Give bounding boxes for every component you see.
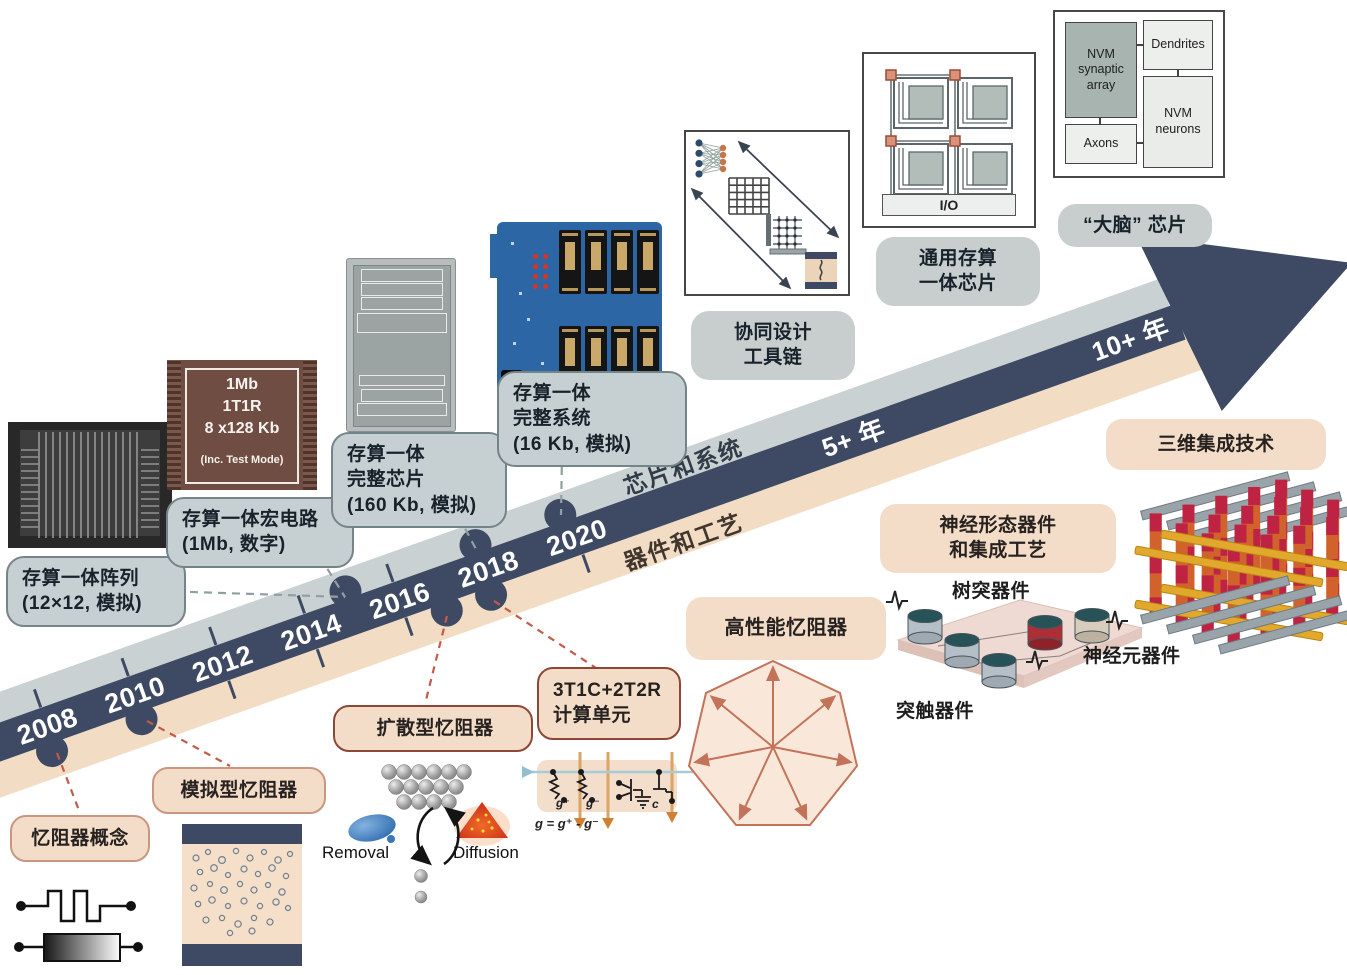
axons-block: Axons — [1065, 124, 1137, 164]
led-icon — [533, 264, 538, 269]
die-block — [357, 313, 447, 333]
callout-line: 通用存算 — [884, 246, 1032, 271]
callout-line: 和集成工艺 — [890, 538, 1106, 563]
block-connector — [1177, 70, 1179, 76]
neural-network-icon — [695, 139, 726, 177]
codesign-flow-art — [686, 132, 844, 290]
callout-line: 计算单元 — [553, 703, 669, 728]
memristor-module — [585, 230, 607, 294]
die-block — [359, 375, 445, 386]
chip-wiring-left — [21, 444, 39, 528]
memristor-symbol-icon — [14, 891, 143, 961]
io-block: I/O — [882, 194, 1016, 216]
callout-3t1c-2t2r-cell: 3T1C+2T2R 计算单元 — [537, 667, 681, 740]
crossbar-3d-graphic — [1135, 472, 1347, 654]
full-chip-die-photo — [346, 258, 456, 432]
codesign-flow-panel — [684, 130, 850, 296]
dendrite-device-cylinder — [1028, 616, 1062, 651]
weight-matrix-icon — [729, 178, 769, 214]
callout-cim-full-chip: 存算一体 完整芯片 (160 Kb, 模拟) — [331, 432, 507, 528]
callout-line: 一体芯片 — [884, 271, 1032, 296]
silkscreen-dot — [541, 362, 544, 365]
die-block — [361, 389, 443, 402]
callout-line: (12×12, 模拟) — [22, 591, 172, 616]
callout-line: 神经形态器件 — [890, 513, 1106, 538]
callout-line: 存算一体 — [347, 442, 493, 467]
callout-neuromorphic-devices: 神经形态器件 和集成工艺 — [880, 504, 1116, 573]
callout-brain-chip: “大脑” 芯片 — [1058, 204, 1212, 247]
led-icon — [543, 284, 548, 289]
diffusion-flame-icon — [454, 802, 510, 846]
callout-general-cim-chip: 通用存算 一体芯片 — [876, 237, 1040, 306]
silkscreen-dot — [519, 292, 522, 295]
led-icon — [543, 264, 548, 269]
callout-line: 扩散型忆阻器 — [349, 716, 521, 741]
memristor-module — [611, 230, 633, 294]
callout-line: 高性能忆阻器 — [696, 615, 876, 642]
diffusive-memristor-graphic — [346, 765, 510, 904]
conductance-formula: g = g⁺ - g⁻ — [535, 816, 599, 832]
die-label: 1T1R — [167, 398, 317, 416]
die-block — [357, 403, 447, 416]
callout-cim-array: 存算一体阵列 (12×12, 模拟) — [6, 556, 186, 627]
led-icon — [543, 254, 548, 259]
neuron-device-cylinder — [1075, 609, 1109, 644]
callout-codesign-toolchain: 协同设计 工具链 — [691, 311, 855, 380]
analog-memristor-crosssection — [182, 824, 302, 966]
dendrite-device-label: 树突器件 — [952, 576, 1030, 603]
callout-line: 完整系统 — [513, 406, 673, 431]
callout-line: (16 Kb, 模拟) — [513, 432, 673, 457]
pcb-tab — [490, 234, 499, 278]
callout-line: 存算一体宏电路 — [182, 507, 340, 532]
g-plus-label: g⁺ — [556, 796, 570, 810]
callout-line: (1Mb, 数字) — [182, 532, 340, 557]
callout-line: 工具链 — [699, 345, 847, 370]
led-icon — [533, 254, 538, 259]
input-arrow-icon — [522, 766, 534, 778]
nvm-synaptic-array-block: NVM synaptic array — [1065, 22, 1137, 118]
dendrites-block: Dendrites — [1143, 20, 1213, 70]
callout-line: 三维集成技术 — [1116, 432, 1316, 457]
memristor-module — [559, 230, 581, 294]
block-connector — [1137, 142, 1143, 144]
memristor-roadmap-figure: 2008 2010 2012 2014 2016 2018 2020 5+ 年 … — [0, 0, 1347, 975]
callout-line: 模拟型忆阻器 — [164, 778, 314, 803]
block-connector — [1137, 44, 1143, 46]
callout-line: 忆阻器概念 — [22, 826, 138, 851]
neuromorphic-platform-graphic — [886, 591, 1142, 688]
callout-diffusive-memristor: 扩散型忆阻器 — [333, 705, 533, 752]
callout-line: 存算一体 — [513, 381, 673, 406]
synapse-device-label: 突触器件 — [896, 696, 974, 723]
memristor-module — [637, 230, 659, 294]
callout-line: 协同设计 — [699, 320, 847, 345]
neuron-device-label: 神经元器件 — [1083, 641, 1181, 668]
callout-cim-macro: 存算一体宏电路 (1Mb, 数字) — [166, 497, 354, 568]
die-block — [361, 269, 443, 282]
performance-heptagon-chart — [689, 661, 857, 825]
callout-analog-memristor: 模拟型忆阻器 — [152, 767, 326, 814]
callout-3d-integration: 三维集成技术 — [1106, 419, 1326, 470]
callout-line: (160 Kb, 模拟) — [347, 493, 493, 518]
capacitor-label: c — [652, 797, 659, 811]
silkscreen-dot — [527, 318, 530, 321]
general-cim-chip-panel: I/O — [862, 52, 1036, 228]
led-icon — [533, 274, 538, 279]
callout-cim-full-system: 存算一体 完整系统 (16 Kb, 模拟) — [497, 371, 687, 467]
silkscreen-dot — [513, 342, 516, 345]
chip-wiring-right — [141, 444, 159, 528]
device-crosssection-icon — [805, 252, 837, 289]
die-block — [361, 297, 443, 310]
die-label: 8 x128 Kb — [167, 420, 317, 438]
callout-line: 3T1C+2T2R — [553, 678, 669, 703]
g-minus-label: g⁻ — [586, 796, 600, 810]
die-label: (Inc. Test Mode) — [167, 454, 317, 466]
callout-line: 存算一体阵列 — [22, 566, 172, 591]
die-block — [361, 283, 443, 296]
macro-chip-photo: 1Mb 1T1R 8 x128 Kb (Inc. Test Mode) — [167, 360, 317, 490]
chip-wiring-vertical — [38, 432, 142, 538]
callout-line: “大脑” 芯片 — [1066, 213, 1204, 238]
die-label: 1Mb — [167, 376, 317, 394]
crossbar-array-icon — [766, 214, 806, 254]
silkscreen-dot — [511, 242, 514, 245]
callout-memristor-concept: 忆阻器概念 — [10, 815, 150, 862]
diffusion-label: Diffusion — [453, 843, 519, 863]
crossbar-chip-photo — [8, 422, 172, 548]
block-connector — [1099, 118, 1101, 124]
removal-label: Removal — [322, 843, 389, 863]
led-icon — [543, 274, 548, 279]
led-icon — [533, 284, 538, 289]
brain-chip-panel: NVM synaptic array Dendrites NVM neurons… — [1053, 10, 1225, 178]
callout-line: 完整芯片 — [347, 467, 493, 492]
callout-high-performance-memristor: 高性能忆阻器 — [686, 597, 886, 660]
nvm-neurons-block: NVM neurons — [1143, 76, 1213, 168]
removal-droplet-dot — [387, 835, 395, 843]
